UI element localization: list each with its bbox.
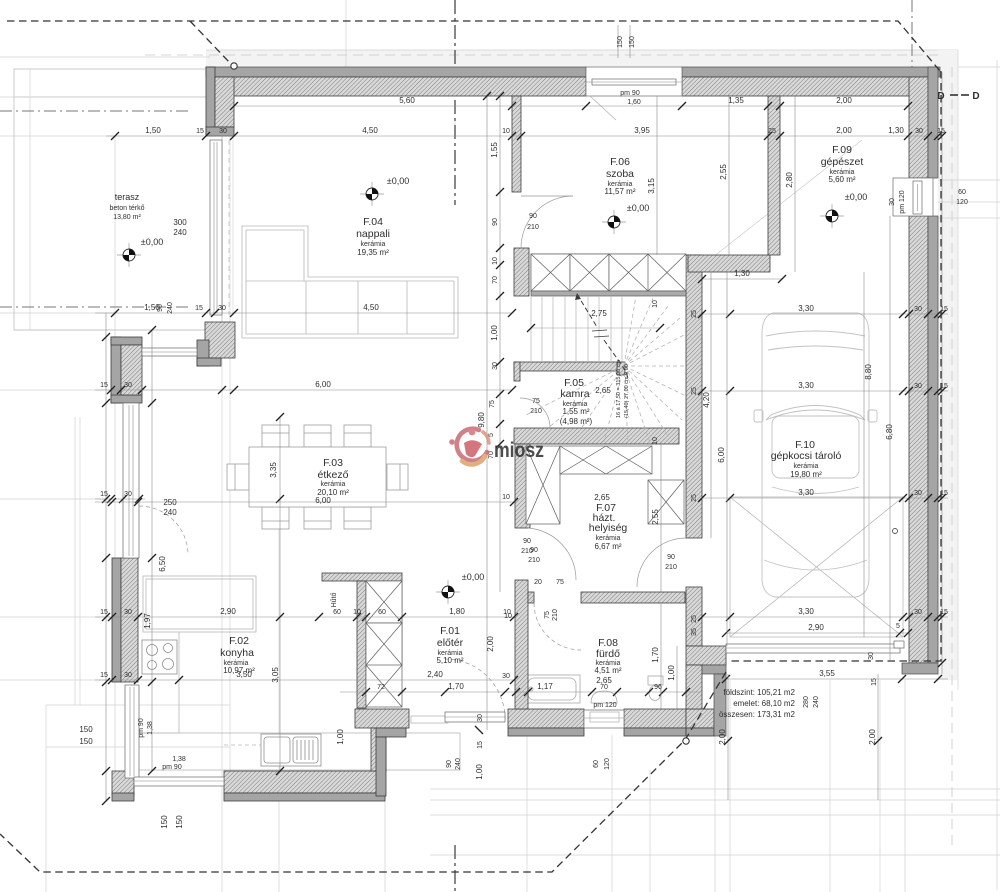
svg-text:240: 240	[813, 696, 820, 708]
svg-text:1,38: 1,38	[147, 721, 154, 735]
svg-text:15: 15	[477, 741, 484, 749]
svg-text:±0,00: ±0,00	[141, 237, 163, 247]
svg-text:60: 60	[958, 189, 966, 196]
svg-text:150: 150	[160, 815, 169, 829]
svg-text:kamra: kamra	[560, 388, 589, 400]
svg-text:2,00: 2,00	[486, 636, 495, 652]
svg-text:3,30: 3,30	[798, 381, 814, 390]
svg-text:30: 30	[915, 128, 923, 135]
svg-text:1,70: 1,70	[448, 682, 464, 691]
svg-text:10: 10	[504, 613, 512, 620]
svg-text:2,65: 2,65	[595, 386, 611, 395]
svg-text:96: 96	[654, 684, 662, 691]
svg-text:2,00: 2,00	[836, 126, 852, 135]
svg-text:(4,98 m²): (4,98 m²)	[560, 417, 593, 426]
svg-text:D: D	[937, 91, 944, 102]
svg-text:240: 240	[163, 508, 177, 517]
svg-text:6,80: 6,80	[885, 424, 894, 440]
svg-text:3,55: 3,55	[819, 669, 835, 678]
svg-text:25: 25	[691, 310, 698, 318]
svg-text:3,15: 3,15	[647, 178, 656, 194]
svg-text:1,00: 1,00	[475, 764, 484, 780]
svg-text:3,95: 3,95	[634, 126, 650, 135]
svg-text:kerámia: kerámia	[361, 241, 386, 248]
svg-text:3,30: 3,30	[798, 488, 814, 497]
svg-text:3,50: 3,50	[236, 670, 252, 679]
svg-text:1,17: 1,17	[537, 682, 553, 691]
svg-text:terasz: terasz	[115, 192, 140, 202]
svg-text:10: 10	[353, 609, 361, 616]
svg-text:30: 30	[914, 306, 922, 313]
svg-text:150: 150	[79, 725, 93, 734]
svg-text:1,97: 1,97	[143, 613, 152, 629]
svg-text:pm 120: pm 120	[899, 190, 906, 213]
svg-text:6,50: 6,50	[158, 556, 167, 572]
svg-text:150: 150	[617, 36, 624, 48]
svg-text:étkező: étkező	[318, 469, 349, 481]
svg-text:240: 240	[167, 302, 174, 314]
svg-text:150: 150	[629, 36, 636, 48]
svg-text:F.03: F.03	[323, 457, 343, 469]
svg-text:25: 25	[768, 128, 776, 135]
svg-text:90: 90	[446, 760, 453, 768]
svg-text:4,50: 4,50	[363, 303, 379, 312]
svg-text:2,65: 2,65	[594, 493, 610, 502]
svg-text:15: 15	[195, 305, 203, 312]
svg-text:5: 5	[896, 623, 900, 630]
svg-text:30: 30	[218, 305, 226, 312]
svg-text:5,10 m²: 5,10 m²	[436, 656, 463, 665]
svg-text:90: 90	[492, 218, 499, 226]
svg-text:15: 15	[196, 128, 204, 135]
svg-text:pm 90: pm 90	[138, 718, 145, 738]
svg-text:1,80: 1,80	[449, 607, 465, 616]
svg-text:10: 10	[502, 128, 510, 135]
svg-text:15: 15	[100, 672, 108, 679]
svg-text:30: 30	[219, 128, 227, 135]
svg-text:2,40: 2,40	[427, 670, 443, 679]
svg-text:19,80 m²: 19,80 m²	[790, 470, 822, 479]
svg-text:1,30: 1,30	[888, 126, 904, 135]
svg-text:210: 210	[527, 224, 539, 231]
svg-text:30: 30	[477, 714, 484, 722]
svg-text:3,05: 3,05	[271, 667, 280, 683]
svg-text:70: 70	[492, 276, 499, 284]
svg-text:70: 70	[600, 684, 608, 691]
svg-text:90: 90	[157, 304, 164, 312]
svg-text:2,90: 2,90	[220, 607, 236, 616]
svg-text:5,60: 5,60	[399, 96, 415, 105]
svg-text:2,55: 2,55	[719, 164, 728, 180]
svg-text:kerámia: kerámia	[321, 481, 346, 488]
svg-text:kerámia: kerámia	[794, 463, 819, 470]
svg-text:3,30: 3,30	[798, 607, 814, 616]
svg-text:±0,00: ±0,00	[627, 203, 649, 213]
svg-text:2,75: 2,75	[591, 309, 607, 318]
svg-text:3,30: 3,30	[798, 304, 814, 313]
svg-text:30: 30	[502, 673, 510, 680]
svg-text:F.02: F.02	[229, 635, 249, 647]
svg-text:120: 120	[956, 199, 968, 206]
svg-text:30: 30	[492, 362, 499, 370]
svg-text:60: 60	[333, 609, 341, 616]
svg-text:F.04: F.04	[363, 216, 383, 228]
svg-text:90: 90	[529, 213, 537, 220]
svg-text:összesen: 173,31 m2: összesen: 173,31 m2	[719, 710, 796, 719]
svg-text:6,00: 6,00	[717, 447, 726, 463]
svg-text:beton térkő: beton térkő	[109, 205, 144, 212]
svg-text:4,20: 4,20	[702, 392, 711, 408]
svg-text:emelet: 68,10 m2: emelet: 68,10 m2	[733, 699, 795, 708]
svg-text:Hűtő: Hűtő	[331, 593, 338, 608]
svg-text:9,80: 9,80	[477, 412, 486, 428]
svg-text:1,00: 1,00	[667, 665, 676, 681]
svg-text:10: 10	[502, 494, 510, 501]
svg-text:11,57 m²: 11,57 m²	[605, 187, 636, 196]
svg-text:3,35: 3,35	[269, 462, 278, 478]
svg-text:F.06: F.06	[610, 156, 630, 168]
svg-text:1,00: 1,00	[336, 729, 345, 745]
svg-text:6,00: 6,00	[315, 496, 331, 505]
svg-text:(15,40) 27,00 cm 0,00: (15,40) 27,00 cm 0,00	[624, 364, 630, 418]
svg-text:gépészet: gépészet	[821, 156, 864, 168]
svg-text:15: 15	[871, 678, 878, 686]
svg-text:1,30: 1,30	[734, 269, 750, 278]
svg-text:miosz: miosz	[494, 439, 544, 462]
svg-text:1,50: 1,50	[145, 126, 161, 135]
svg-text:280: 280	[803, 696, 810, 708]
svg-text:30: 30	[868, 652, 875, 660]
svg-text:75: 75	[532, 398, 540, 405]
svg-text:60: 60	[593, 760, 600, 768]
svg-text:1,55: 1,55	[490, 142, 499, 158]
svg-text:75: 75	[556, 579, 564, 586]
svg-text:1,35: 1,35	[728, 96, 744, 105]
svg-text:20: 20	[534, 579, 542, 586]
svg-text:6,67 m²: 6,67 m²	[594, 542, 621, 551]
svg-text:30: 30	[124, 609, 132, 616]
svg-text:150: 150	[175, 815, 184, 829]
svg-text:210: 210	[665, 564, 677, 571]
svg-text:szoba: szoba	[606, 168, 634, 180]
svg-text:90: 90	[667, 554, 675, 561]
svg-text:2,00: 2,00	[868, 729, 877, 745]
svg-text:30: 30	[124, 382, 132, 389]
svg-text:75: 75	[489, 400, 496, 408]
svg-text:8,80: 8,80	[864, 364, 873, 380]
svg-text:240: 240	[455, 758, 462, 770]
svg-text:240: 240	[173, 228, 187, 237]
svg-text:35: 35	[691, 628, 698, 636]
svg-text:nappali: nappali	[356, 228, 390, 240]
svg-text:4,51 m²: 4,51 m²	[594, 666, 621, 675]
svg-text:F.01: F.01	[440, 625, 460, 637]
svg-text:30: 30	[914, 490, 922, 497]
svg-text:1,00: 1,00	[490, 325, 499, 341]
svg-text:5,60 m²: 5,60 m²	[828, 175, 855, 184]
svg-text:19,35 m²: 19,35 m²	[357, 248, 389, 257]
svg-text:1,38: 1,38	[172, 756, 186, 763]
svg-text:150: 150	[79, 737, 93, 746]
svg-text:210: 210	[552, 609, 559, 621]
svg-text:72: 72	[377, 684, 385, 691]
svg-text:25: 25	[691, 494, 698, 502]
svg-text:földszint: 105,21 m2: földszint: 105,21 m2	[723, 688, 795, 697]
svg-text:±0,00: ±0,00	[462, 572, 484, 582]
svg-text:210: 210	[528, 557, 540, 564]
svg-text:D: D	[972, 91, 979, 102]
svg-text:gépkocsi tároló: gépkocsi tároló	[771, 450, 842, 462]
svg-text:kerámia: kerámia	[596, 535, 621, 542]
svg-text:30: 30	[124, 491, 132, 498]
svg-text:pm 120: pm 120	[593, 702, 616, 709]
svg-text:pm 90: pm 90	[162, 764, 182, 771]
svg-text:pm 90: pm 90	[620, 90, 640, 97]
svg-text:1,70: 1,70	[651, 647, 660, 663]
svg-text:helyiség: helyiség	[589, 522, 628, 534]
svg-text:60: 60	[378, 609, 386, 616]
svg-text:±0,00: ±0,00	[845, 192, 867, 202]
svg-text:120: 120	[604, 758, 611, 770]
svg-text:10: 10	[652, 437, 659, 445]
svg-text:15: 15	[100, 609, 108, 616]
svg-text:10: 10	[492, 257, 499, 265]
svg-text:30: 30	[124, 672, 132, 679]
svg-text:10: 10	[652, 300, 659, 308]
svg-text:25: 25	[691, 387, 698, 395]
svg-text:210: 210	[530, 408, 542, 415]
svg-text:4,50: 4,50	[362, 126, 378, 135]
svg-text:konyha: konyha	[220, 647, 254, 659]
svg-text:16 á 17,50 = 315,00 cm: 16 á 17,50 = 315,00 cm	[616, 360, 622, 418]
svg-text:15: 15	[100, 491, 108, 498]
svg-text:300: 300	[173, 218, 187, 227]
svg-text:1,55 m²: 1,55 m²	[562, 407, 589, 416]
svg-text:±0,00: ±0,00	[387, 176, 409, 186]
svg-text:2,80: 2,80	[785, 172, 794, 188]
svg-text:15: 15	[100, 382, 108, 389]
svg-text:1,60: 1,60	[627, 99, 641, 106]
svg-text:fürdő: fürdő	[596, 648, 620, 660]
svg-text:210: 210	[521, 548, 533, 555]
svg-text:F.09: F.09	[832, 144, 852, 156]
svg-text:25: 25	[691, 615, 698, 623]
svg-text:2,55: 2,55	[651, 509, 660, 525]
svg-text:2,00: 2,00	[836, 96, 852, 105]
svg-text:75: 75	[544, 611, 551, 619]
svg-text:2,00: 2,00	[718, 729, 727, 745]
svg-text:30: 30	[889, 198, 896, 206]
svg-text:előtér: előtér	[437, 637, 464, 649]
svg-text:13,80 m²: 13,80 m²	[113, 214, 141, 221]
svg-text:6,00: 6,00	[315, 380, 331, 389]
svg-text:30: 30	[914, 383, 922, 390]
svg-text:250: 250	[163, 498, 177, 507]
svg-text:30: 30	[914, 609, 922, 616]
svg-text:90: 90	[523, 538, 531, 545]
svg-text:2,90: 2,90	[808, 623, 824, 632]
